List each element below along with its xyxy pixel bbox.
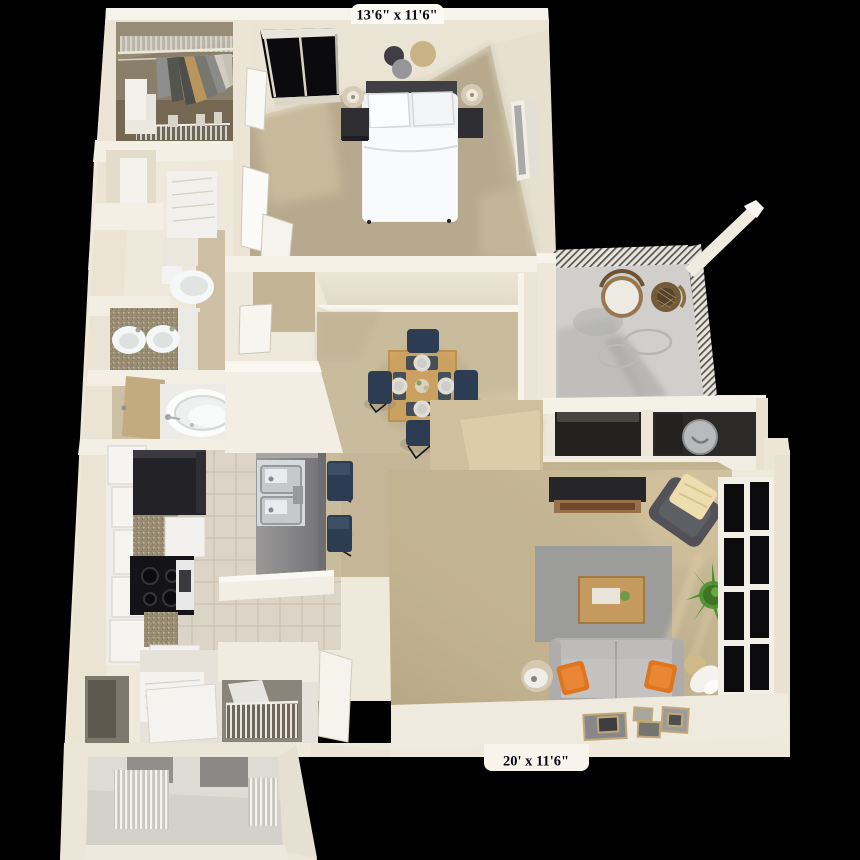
svg-text:13'6" x 11'6": 13'6" x 11'6" [356, 8, 437, 24]
svg-text:20' x 11'6": 20' x 11'6" [503, 754, 569, 770]
